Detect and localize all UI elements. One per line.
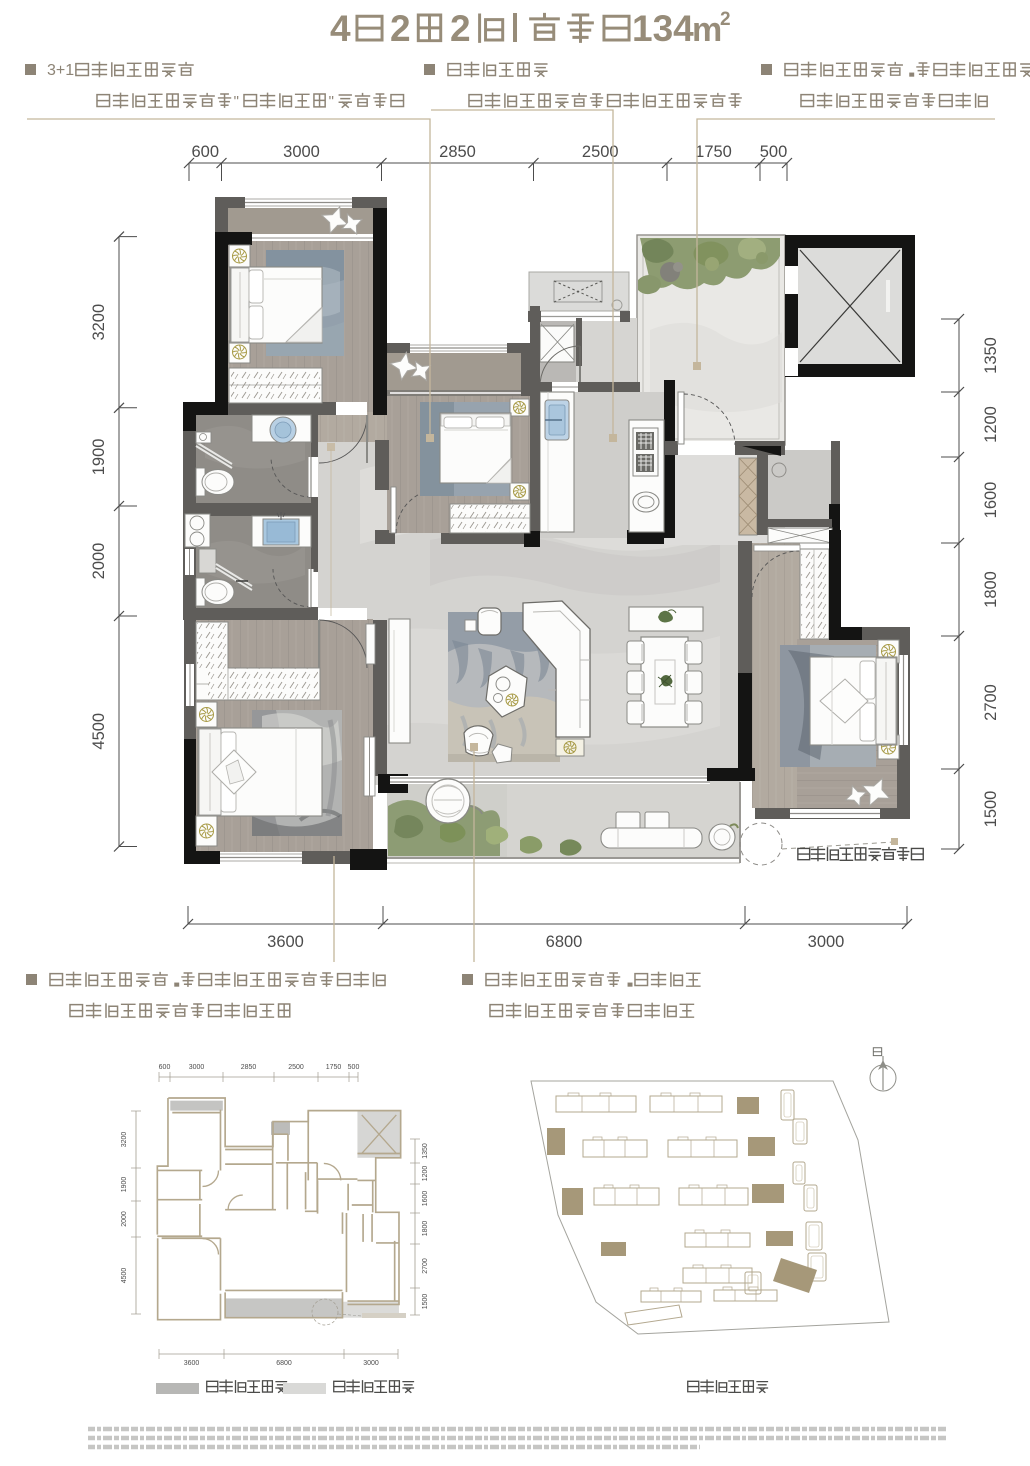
- svg-text:1800: 1800: [982, 571, 1000, 608]
- svg-text:3200: 3200: [121, 1132, 128, 1148]
- svg-text:1600: 1600: [982, 482, 1000, 519]
- svg-text:1750: 1750: [695, 143, 732, 161]
- svg-text:3000: 3000: [808, 933, 845, 951]
- svg-text:134: 134: [632, 8, 694, 49]
- svg-text:1900: 1900: [121, 1177, 128, 1193]
- svg-text:1200: 1200: [982, 406, 1000, 443]
- svg-text:4500: 4500: [121, 1268, 128, 1284]
- svg-text:600: 600: [191, 143, 219, 161]
- svg-text:6800: 6800: [546, 933, 583, 951]
- svg-text:2850: 2850: [439, 143, 476, 161]
- svg-text:m: m: [692, 11, 722, 49]
- svg-text:2: 2: [720, 9, 731, 30]
- svg-text:3000: 3000: [363, 1360, 379, 1367]
- svg-text:2: 2: [390, 8, 411, 49]
- svg-text:600: 600: [159, 1064, 171, 1071]
- svg-text:3+1: 3+1: [47, 62, 74, 79]
- svg-text:3000: 3000: [189, 1064, 205, 1071]
- svg-text:1500: 1500: [422, 1294, 429, 1310]
- svg-text:3600: 3600: [184, 1360, 200, 1367]
- svg-text:1900: 1900: [90, 439, 108, 476]
- svg-text:1600: 1600: [422, 1191, 429, 1207]
- svg-text:1750: 1750: [326, 1064, 342, 1071]
- svg-text:1350: 1350: [422, 1143, 429, 1159]
- svg-text:2700: 2700: [982, 684, 1000, 721]
- svg-text:500: 500: [348, 1064, 360, 1071]
- svg-text:": ": [234, 93, 239, 110]
- svg-text:2700: 2700: [422, 1258, 429, 1274]
- svg-text:3000: 3000: [283, 143, 320, 161]
- svg-text:1500: 1500: [982, 791, 1000, 828]
- svg-text:2000: 2000: [121, 1211, 128, 1227]
- svg-text:1800: 1800: [422, 1221, 429, 1237]
- svg-text:1200: 1200: [422, 1166, 429, 1182]
- svg-text:3200: 3200: [90, 304, 108, 341]
- svg-text:500: 500: [760, 143, 788, 161]
- svg-text:": ": [329, 93, 334, 110]
- svg-text:1350: 1350: [982, 337, 1000, 374]
- svg-text:4500: 4500: [90, 713, 108, 750]
- svg-text:2: 2: [450, 8, 471, 49]
- svg-text:2000: 2000: [90, 543, 108, 580]
- svg-text:6800: 6800: [276, 1360, 292, 1367]
- svg-text:2850: 2850: [241, 1064, 257, 1071]
- svg-text:3600: 3600: [267, 933, 304, 951]
- svg-text:4: 4: [330, 8, 351, 49]
- svg-text:2500: 2500: [288, 1064, 304, 1071]
